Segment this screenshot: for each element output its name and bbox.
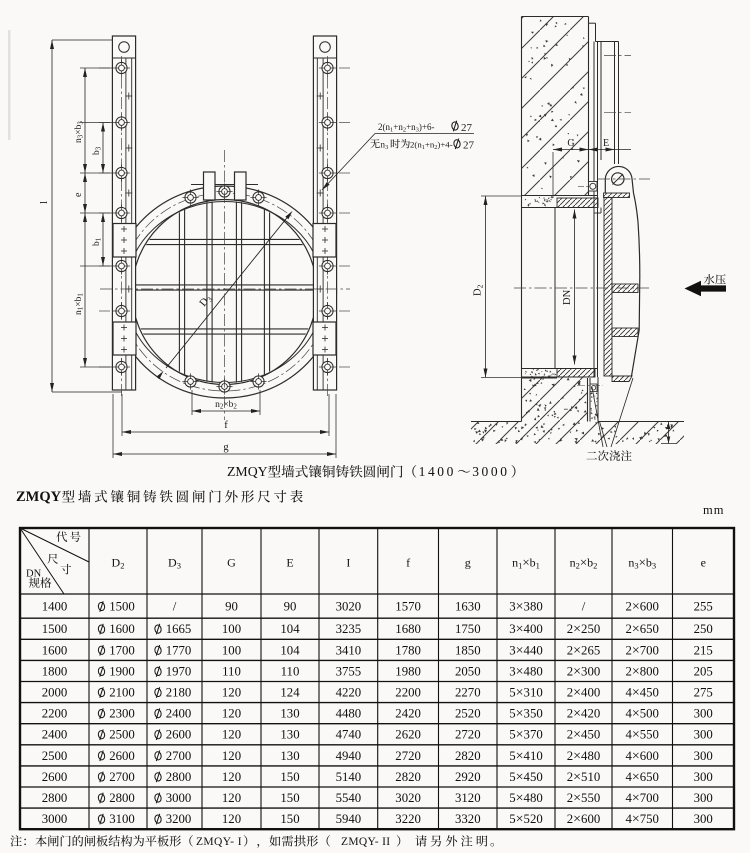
svg-text:2(n1+n2)+4-: 2(n1+n2)+4- [410, 140, 453, 152]
svg-text:1680: 1680 [395, 622, 421, 636]
svg-text:4×550: 4×550 [625, 728, 659, 743]
svg-text:104: 104 [280, 643, 300, 657]
svg-text:120: 120 [222, 686, 241, 700]
svg-text:1770: 1770 [166, 643, 192, 657]
svg-text:4×500: 4×500 [625, 707, 659, 722]
svg-text:90: 90 [284, 600, 297, 614]
svg-text:2×650: 2×650 [625, 622, 659, 637]
svg-text:3100: 3100 [109, 812, 135, 826]
svg-text:300: 300 [694, 812, 713, 826]
svg-text:1700: 1700 [109, 643, 135, 657]
svg-text:1570: 1570 [395, 600, 421, 614]
svg-text:2100: 2100 [109, 686, 135, 700]
svg-text:1750: 1750 [455, 622, 481, 636]
svg-text:2820: 2820 [395, 770, 421, 784]
svg-text:3220: 3220 [395, 812, 421, 826]
svg-text:255: 255 [694, 600, 713, 614]
svg-text:3020: 3020 [336, 600, 362, 614]
svg-text:I: I [346, 556, 350, 570]
svg-text:2800: 2800 [166, 770, 192, 784]
svg-text:2270: 2270 [455, 686, 481, 700]
svg-text:3×440: 3×440 [509, 643, 543, 658]
svg-text:1400: 1400 [419, 464, 456, 479]
svg-text:2×250: 2×250 [567, 622, 601, 637]
svg-text:300: 300 [694, 728, 713, 742]
svg-text:27: 27 [463, 140, 475, 152]
svg-text:ZMQY: ZMQY [227, 464, 268, 479]
svg-text:2700: 2700 [109, 770, 135, 784]
svg-text:2×480: 2×480 [567, 749, 601, 764]
svg-text:120: 120 [222, 707, 241, 721]
svg-text:2600: 2600 [42, 770, 68, 784]
svg-text:1980: 1980 [395, 664, 421, 678]
svg-text:2000: 2000 [42, 686, 68, 700]
svg-text:120: 120 [222, 728, 241, 742]
svg-text:2800: 2800 [109, 791, 135, 805]
svg-text:2050: 2050 [455, 664, 481, 678]
svg-text:2×700: 2×700 [625, 643, 659, 658]
svg-text:2×400: 2×400 [567, 686, 601, 701]
svg-text:2820: 2820 [455, 749, 481, 763]
svg-text:3×380: 3×380 [509, 600, 543, 615]
svg-text:110: 110 [222, 664, 241, 678]
svg-text:2720: 2720 [455, 728, 481, 742]
svg-text:4×450: 4×450 [625, 686, 659, 701]
svg-text:2×550: 2×550 [567, 791, 601, 806]
svg-text:300: 300 [694, 749, 713, 763]
svg-text:n3×b3: n3×b3 [74, 121, 85, 143]
svg-text:150: 150 [280, 812, 299, 826]
svg-text:4×650: 4×650 [625, 770, 659, 785]
svg-text:DN: DN [562, 289, 573, 305]
svg-text:2×600: 2×600 [567, 812, 601, 827]
svg-text:2520: 2520 [455, 707, 481, 721]
svg-text:e: e [73, 192, 84, 197]
svg-text:/: / [582, 600, 586, 614]
svg-text:120: 120 [222, 791, 241, 805]
svg-text:1665: 1665 [166, 622, 192, 636]
svg-text:f: f [406, 556, 410, 570]
svg-text:150: 150 [280, 791, 299, 805]
svg-text:2420: 2420 [395, 707, 421, 721]
svg-text:4×750: 4×750 [625, 812, 659, 827]
svg-text:3200: 3200 [166, 812, 192, 826]
svg-text:G: G [227, 556, 236, 570]
svg-text:300: 300 [694, 791, 713, 805]
svg-text:3320: 3320 [455, 812, 481, 826]
svg-text:2×510: 2×510 [567, 770, 601, 785]
svg-text:2800: 2800 [42, 791, 68, 805]
svg-text:2×800: 2×800 [625, 664, 659, 679]
svg-text:4480: 4480 [336, 707, 362, 721]
svg-text:2720: 2720 [395, 749, 421, 763]
svg-text:G: G [567, 138, 574, 149]
svg-text:1900: 1900 [109, 664, 135, 678]
svg-text:1600: 1600 [109, 622, 135, 636]
svg-text:1400: 1400 [42, 600, 68, 614]
svg-text:2×420: 2×420 [567, 707, 601, 722]
svg-text:130: 130 [280, 749, 299, 763]
svg-text:5×350: 5×350 [509, 707, 543, 722]
svg-text:3410: 3410 [336, 643, 362, 657]
svg-text:E: E [286, 556, 293, 570]
svg-text:DN: DN [26, 569, 42, 580]
svg-text:27: 27 [461, 122, 473, 134]
svg-text:150: 150 [280, 770, 299, 784]
svg-text:5×450: 5×450 [509, 770, 543, 785]
svg-text:5140: 5140 [336, 770, 362, 784]
svg-text:275: 275 [694, 686, 713, 700]
svg-text:2×300: 2×300 [567, 664, 601, 679]
svg-text:4×600: 4×600 [625, 749, 659, 764]
svg-text:3000: 3000 [166, 791, 192, 805]
svg-text:2500: 2500 [109, 728, 135, 742]
svg-text:104: 104 [280, 622, 300, 636]
svg-text:4940: 4940 [336, 749, 362, 763]
svg-text:2×265: 2×265 [567, 643, 601, 658]
svg-text:ZMQY- II: ZMQY- II [341, 836, 390, 848]
svg-text:3000: 3000 [472, 464, 509, 479]
svg-text:ZMQY: ZMQY [16, 489, 62, 505]
svg-text:2600: 2600 [166, 728, 192, 742]
svg-text:2200: 2200 [42, 707, 68, 721]
svg-text:1500: 1500 [42, 622, 68, 636]
svg-text:g: g [465, 556, 471, 570]
svg-text:2700: 2700 [166, 749, 192, 763]
svg-text:4×700: 4×700 [625, 791, 659, 806]
svg-text:l: l [38, 201, 50, 204]
svg-text:300: 300 [694, 770, 713, 784]
svg-text:3120: 3120 [455, 791, 481, 805]
svg-text:1800: 1800 [42, 664, 68, 678]
svg-text:E: E [603, 138, 609, 149]
svg-text:2500: 2500 [42, 749, 68, 763]
svg-text:1630: 1630 [455, 600, 481, 614]
svg-text:130: 130 [280, 707, 299, 721]
svg-text:1600: 1600 [42, 643, 68, 657]
svg-text:3×480: 3×480 [509, 664, 543, 679]
svg-text:2600: 2600 [109, 749, 135, 763]
svg-text:3020: 3020 [395, 791, 421, 805]
svg-text:b3: b3 [92, 146, 103, 155]
svg-text:f: f [224, 420, 228, 431]
svg-text:1500: 1500 [109, 600, 135, 614]
svg-text:2×450: 2×450 [567, 728, 601, 743]
svg-text:90: 90 [225, 600, 238, 614]
svg-text:3235: 3235 [336, 622, 362, 636]
svg-text:5940: 5940 [336, 812, 362, 826]
svg-text:e: e [701, 556, 706, 570]
svg-text:2400: 2400 [42, 728, 68, 742]
svg-text:1850: 1850 [455, 643, 481, 657]
svg-text:n2×b2: n2×b2 [215, 400, 237, 411]
svg-text:300: 300 [694, 707, 713, 721]
svg-text:100: 100 [222, 622, 241, 636]
svg-text:2920: 2920 [455, 770, 481, 784]
svg-text:3×400: 3×400 [509, 622, 543, 637]
svg-text:3000: 3000 [42, 812, 68, 826]
svg-text:4220: 4220 [336, 686, 362, 700]
svg-text:120: 120 [222, 770, 241, 784]
svg-text:130: 130 [280, 728, 299, 742]
svg-text:5×410: 5×410 [509, 749, 543, 764]
svg-text:n1×b1: n1×b1 [74, 293, 85, 315]
svg-text:/: / [173, 600, 177, 614]
svg-text:205: 205 [694, 664, 713, 678]
svg-text:2620: 2620 [395, 728, 421, 742]
svg-text:2(n1+n2+n3)+6-: 2(n1+n2+n3)+6- [378, 122, 434, 134]
svg-text:2200: 2200 [395, 686, 421, 700]
svg-text:5×480: 5×480 [509, 791, 543, 806]
svg-text:2300: 2300 [109, 707, 135, 721]
svg-text:mm: mm [703, 503, 724, 517]
svg-text:5×520: 5×520 [509, 812, 543, 827]
svg-text:120: 120 [222, 749, 241, 763]
svg-text:5540: 5540 [336, 791, 362, 805]
svg-text:b1: b1 [92, 237, 103, 246]
svg-text:215: 215 [694, 643, 713, 657]
svg-text:100: 100 [222, 643, 241, 657]
svg-text:124: 124 [280, 686, 300, 700]
svg-text:ZMQY- I: ZMQY- I [196, 836, 242, 848]
svg-text:250: 250 [694, 622, 713, 636]
svg-text:1780: 1780 [395, 643, 421, 657]
svg-text:1970: 1970 [166, 664, 192, 678]
svg-text:5×370: 5×370 [509, 728, 543, 743]
svg-text:110: 110 [281, 664, 300, 678]
svg-text:g: g [223, 442, 229, 453]
svg-text:3755: 3755 [336, 664, 362, 678]
svg-text:2400: 2400 [166, 707, 192, 721]
svg-text:4740: 4740 [336, 728, 362, 742]
svg-text:5×310: 5×310 [509, 686, 543, 701]
svg-text:2×600: 2×600 [625, 600, 659, 615]
svg-text:2180: 2180 [166, 686, 192, 700]
svg-text:120: 120 [222, 812, 241, 826]
